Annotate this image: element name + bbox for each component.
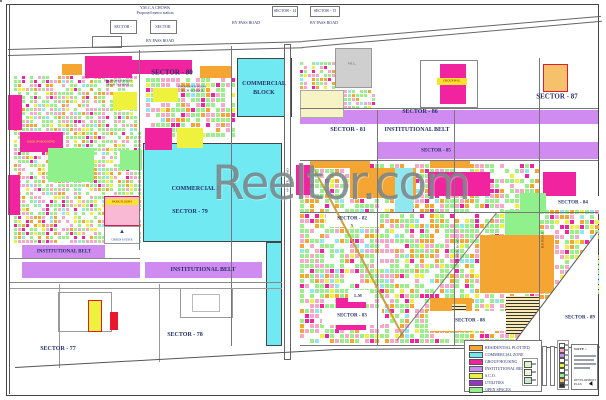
notes-line — [574, 367, 590, 369]
mini-legend-text — [532, 371, 536, 373]
map-label: SECTOR - — [114, 25, 132, 29]
notes-box: NOTE :- DEVELOPMENT PLAN ▲ — [571, 344, 598, 390]
mini-legend-swatch — [524, 377, 532, 384]
map-label: SECTOR - 85 — [421, 149, 451, 154]
map-label: SECTOR — [155, 25, 170, 29]
legend-strip-text — [565, 384, 569, 386]
legend-swatch — [469, 380, 483, 386]
map-label: GROUP HSG. — [443, 80, 461, 83]
map-label: BY PASS ROAD — [146, 39, 174, 43]
notes-line — [574, 359, 594, 361]
mini-legend — [522, 358, 538, 386]
map-label: SECTOR - 81 — [330, 127, 366, 133]
map-label: SECTOR - 78 — [167, 332, 203, 338]
legend-label: S.C.O. — [485, 373, 496, 378]
map-label: SECTOR - 84 — [558, 201, 588, 206]
legend-row: OPEN SPACES — [469, 387, 539, 392]
scale-bar — [550, 346, 555, 386]
notes-title: NOTE :- — [574, 347, 587, 351]
map-label: SECTOR - 80 — [151, 70, 193, 77]
map-label: COMMERCIAL — [242, 81, 286, 87]
legend-row: COMMERCIAL ZONE — [469, 352, 539, 357]
legend-label: GROUP HOUSING — [485, 359, 517, 364]
map-label: INSTITUTIONAL BELT — [385, 127, 450, 133]
legend-strip-text — [565, 344, 569, 346]
map-label: SECTOR - 83 — [337, 314, 367, 319]
map-label: INSTITUTIONAL BELT — [37, 250, 91, 255]
map-label: SECTOR - 86 — [402, 109, 438, 115]
map-label: INSTITUTIONAL BELT — [171, 267, 236, 273]
legend-label: RESIDENTIAL PLOTTED — [485, 345, 530, 350]
map-label: SECTOR - 82 — [337, 217, 367, 222]
map-label: N — [351, 224, 354, 228]
map-label: SECTOR - 87 — [536, 94, 578, 101]
map-label: GROUP HOUSING — [27, 140, 55, 144]
legend-swatch — [469, 373, 483, 379]
north-arrow-icon: ▲ — [587, 378, 596, 388]
legend-swatch — [469, 366, 483, 372]
map-label: SECTOR - 14 — [274, 9, 297, 13]
legend-row: RESIDENTIAL PLOTTED — [469, 345, 539, 350]
legend-strip-text — [565, 379, 569, 381]
map-label: VILL. — [348, 62, 357, 66]
legend-strip-text — [565, 349, 569, 351]
map-label: BLOCK — [253, 90, 275, 96]
map-label: SECTOR - 89 — [565, 316, 595, 321]
map-label: TECH SCHOOL — [180, 89, 204, 93]
legend-swatch — [469, 359, 483, 365]
map-label: GREEN ESTATE — [111, 239, 132, 242]
map-label: BY PASS ROAD — [310, 21, 338, 25]
map-label: BY PASS ROAD — [232, 21, 260, 25]
mini-legend-swatch — [524, 369, 532, 376]
legend-swatch — [469, 352, 483, 358]
map-label: TECH SCHOOL — [106, 83, 130, 87]
map-label: ▲ — [119, 229, 125, 235]
map-label: PARK FLOORS — [112, 201, 132, 204]
map-label: SECTOR - 77 — [40, 346, 76, 352]
legend-label: UTILITIES — [485, 380, 504, 385]
legend-label: COMMERCIAL ZONE — [485, 352, 524, 357]
legend-swatch — [469, 345, 483, 351]
map-label: L.M — [354, 294, 361, 298]
legend-label: OPEN SPACES — [485, 387, 511, 392]
legend-label: INSTITUTIONAL BELT — [485, 366, 526, 371]
notes-line — [574, 355, 596, 357]
mini-legend-swatch — [524, 361, 532, 368]
map-label: SECTOR - 88 — [455, 319, 485, 324]
legend-strip-text — [565, 364, 569, 366]
sector-map: Y.M.C.A CHOWKProposed metro stationSECTO… — [0, 0, 606, 400]
legend-strip-text — [565, 359, 569, 361]
map-label: B.P. ROAD — [541, 232, 545, 248]
legend-strip-text — [565, 374, 569, 376]
mini-legend-text — [532, 363, 536, 365]
notes-line — [574, 363, 596, 365]
mini-legend-row — [524, 377, 537, 382]
map-label: SECTOR - 15 — [314, 9, 337, 13]
mini-legend-row — [524, 361, 537, 366]
map-label: SECTOR - 79 — [172, 209, 208, 215]
legend-strip-row — [559, 383, 569, 388]
legend-strip-text — [565, 354, 569, 356]
legend-strip-text — [565, 369, 569, 371]
watermark: Reeltor.com — [212, 156, 512, 211]
mini-legend-row — [524, 369, 537, 374]
map-label: 75 MTR. ROAD — [456, 238, 460, 262]
legend-strip — [557, 340, 569, 390]
legend-swatch — [469, 387, 483, 393]
scale-bar — [542, 346, 547, 386]
mini-legend-text — [532, 379, 536, 381]
map-label: Proposed metro station — [137, 11, 174, 15]
